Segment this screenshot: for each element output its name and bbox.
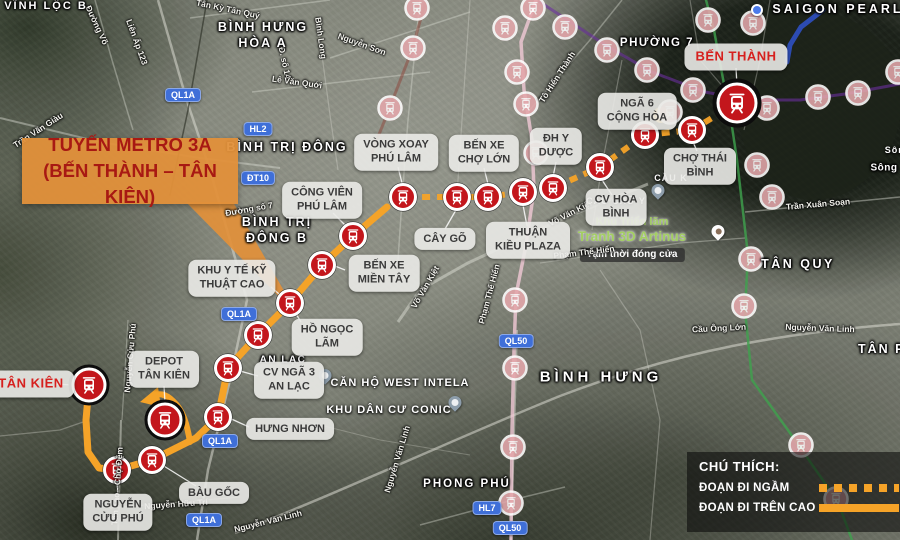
road-name-label: Cầu Ông Lớn	[692, 322, 747, 335]
place-name: PHONG PHÚ	[423, 478, 511, 490]
bridge-pin	[649, 181, 667, 199]
road-name-label: Lê Văn Quới	[271, 74, 322, 91]
road-name-label: Nguyễn Văn Linh	[382, 424, 412, 493]
road-badge: HL7	[472, 501, 501, 515]
road-name-label: Nguyễn Sơn	[337, 31, 388, 58]
station-label: CHỢ THÁIBÌNH	[664, 148, 736, 185]
place-name: TÂN PHONG	[858, 342, 900, 356]
route-callout: TUYẾN METRO 3A (BẾN THÀNH – TÂN KIÊN)	[22, 138, 238, 204]
road-badge: HL2	[243, 122, 272, 136]
legend-elevated-label: ĐOẠN ĐI TRÊN CAO	[699, 502, 819, 514]
place-name: ĐÔNG B	[246, 231, 308, 245]
station-label: TÂN KIÊN	[0, 371, 75, 398]
station-label: HỒ NGỌCLÃM	[292, 319, 363, 356]
road-name-label: Nguyễn Văn Linh	[233, 508, 303, 534]
road-badge: QL1A	[221, 307, 257, 321]
poi-artinus-line2: Tranh 3D Artinus	[578, 229, 686, 245]
map-poi-text: KHU DÂN CƯ CONIC	[326, 404, 451, 416]
road-name-label: Liên Ấp 123	[124, 18, 150, 66]
station-label: VÒNG XOAYPHÚ LÂM	[354, 134, 438, 171]
legend-row-elevated: ĐOẠN ĐI TRÊN CAO	[699, 501, 900, 514]
place-name: BÌNH TRỊ ĐÔNG	[226, 140, 347, 154]
place-name: BÌNH HƯNG	[540, 369, 663, 386]
station-label: CÂY GÕ	[414, 228, 475, 250]
station-label: NGUYỄNCỬU PHÚ	[83, 494, 152, 531]
place-name: SAIGON PEARL	[772, 2, 900, 16]
route-callout-line1: TUYẾN METRO 3A	[22, 132, 238, 158]
legend-underground-label: ĐOẠN ĐI NGẦM	[699, 482, 819, 494]
road-name-label: Phạm Thế Hiển	[476, 263, 502, 325]
map-poi-text: Sông	[885, 145, 900, 155]
station-label: BẾN THÀNH	[684, 44, 787, 71]
road-badge: QL50	[493, 521, 528, 535]
dashed-line-sample	[819, 484, 899, 492]
station-label: ĐH YDƯỢC	[530, 128, 582, 165]
station-label: KHU Y TẾ KỸTHUẬT CAO	[188, 260, 275, 297]
poi-pin	[751, 4, 763, 16]
road-name-label: Trần Xuân Soạn	[786, 196, 851, 212]
station-label: BÀU GỐC	[179, 482, 249, 504]
place-name: Sông	[871, 163, 898, 174]
place-name: HÒA A	[238, 36, 287, 50]
road-name-label: Nguyễn Văn Linh	[785, 322, 855, 334]
map-poi-text: CĂN HỘ WEST INTELA	[331, 377, 470, 389]
road-badge: QL50	[499, 334, 534, 348]
legend: CHÚ THÍCH: ĐOẠN ĐI NGẦM ĐOẠN ĐI TRÊN CAO	[687, 452, 900, 532]
place-name: TÂN QUY	[761, 257, 835, 271]
road-name-label: Bình Long	[313, 17, 329, 60]
station-label: CV NGÃ 3AN LẠC	[254, 362, 324, 399]
solid-line-sample	[819, 504, 899, 512]
road-badge: QL1A	[165, 88, 201, 102]
legend-title: CHÚ THÍCH:	[699, 459, 900, 474]
place-name: PHƯỜNG 7	[620, 37, 694, 49]
station-label: HƯNG NHƠN	[246, 418, 334, 440]
station-label: CV HÒABÌNH	[586, 189, 647, 226]
station-label: DEPOTTÂN KIÊN	[129, 351, 199, 388]
road-badge: ĐT10	[241, 171, 275, 185]
station-label: BẾN XECHỢ LỚN	[449, 135, 519, 172]
artinus-pin	[709, 222, 727, 240]
station-label: BẾN XEMIỀN TÂY	[349, 255, 420, 292]
place-name: VĨNH LỘC B	[4, 0, 88, 12]
station-label: NGÃ 6CỘNG HÒA	[598, 93, 677, 130]
station-label: THUẬNKIỀU PLAZA	[486, 222, 570, 259]
road-badge: QL1A	[186, 513, 222, 527]
legend-row-underground: ĐOẠN ĐI NGẦM	[699, 481, 900, 494]
map-canvas[interactable]: Khu Triển lãm Tranh 3D Artinus Tạm thời …	[0, 0, 900, 540]
station-label: CÔNG VIÊNPHÚ LÂM	[282, 182, 362, 219]
road-name-label: Tô Hiến Thành	[537, 50, 578, 105]
place-name: BÌNH HƯNG	[218, 20, 308, 34]
route-callout-line2: (BẾN THÀNH – TÂN KIÊN)	[22, 158, 238, 210]
road-name-label: Tân Kỳ Tân Quý	[195, 0, 260, 21]
road-badge: QL1A	[202, 434, 238, 448]
